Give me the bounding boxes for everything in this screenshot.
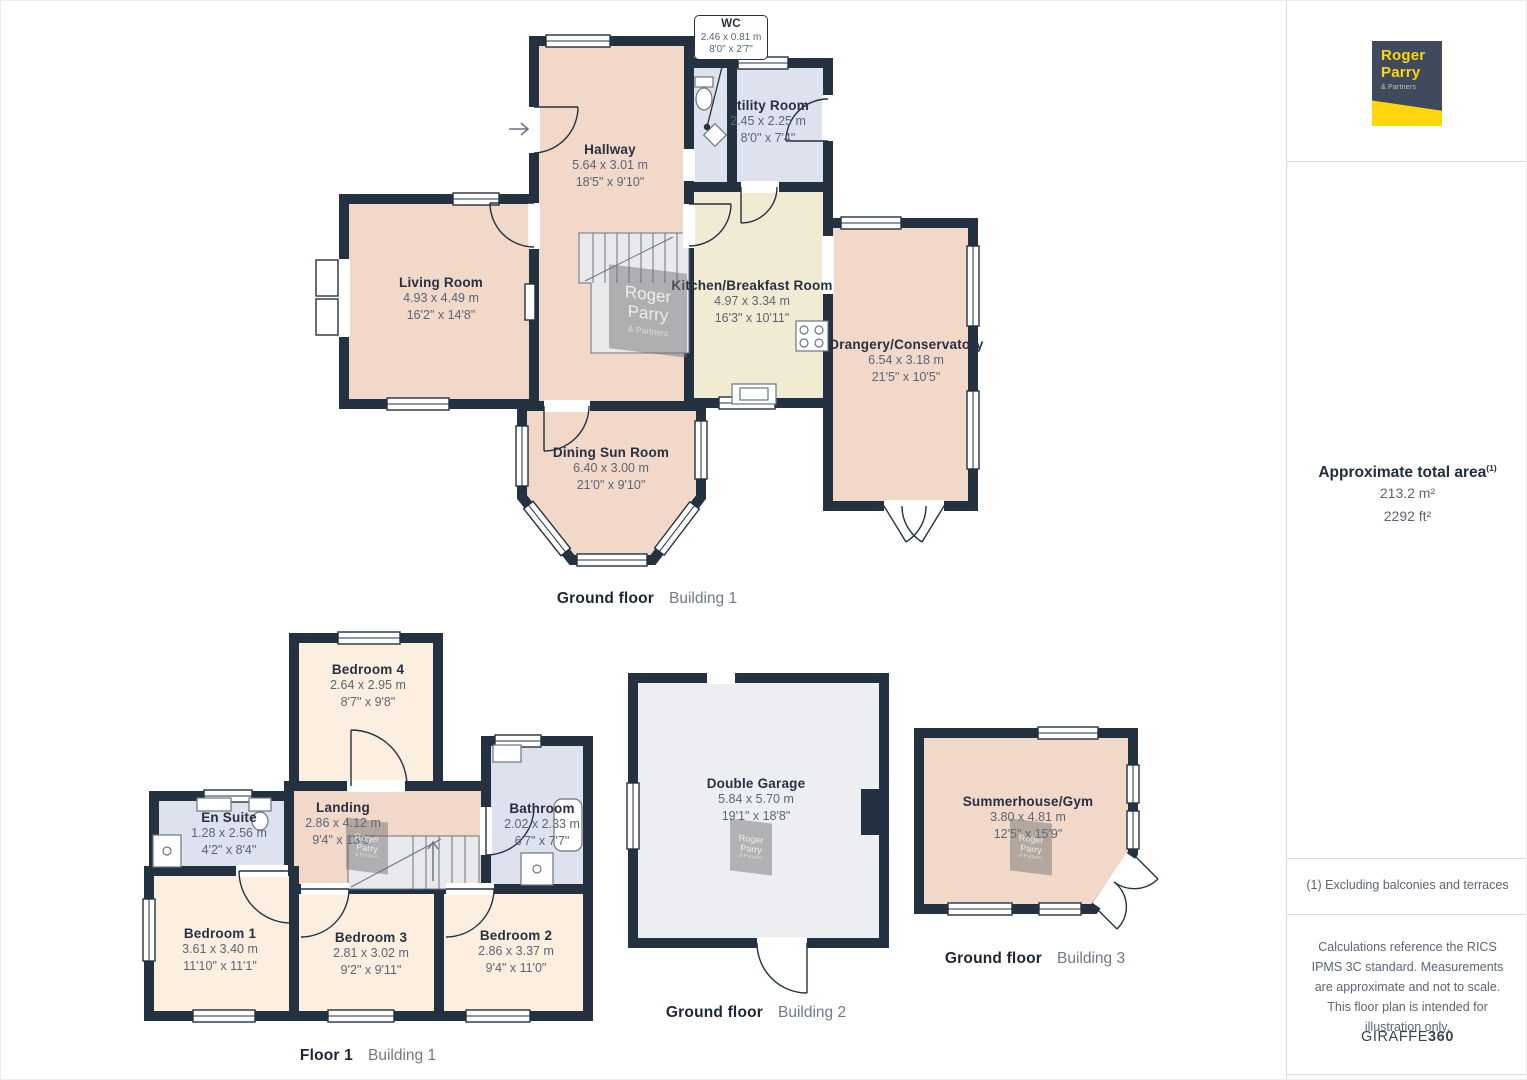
sink-icon bbox=[493, 745, 521, 762]
sink-icon bbox=[197, 798, 231, 811]
stairs-icon bbox=[579, 233, 689, 353]
total-area-title: Approximate total area bbox=[1318, 464, 1486, 481]
building1-floor1-plan bbox=[143, 632, 588, 1022]
shower-icon bbox=[521, 853, 553, 885]
building2-ground-plan bbox=[627, 672, 884, 993]
shower-icon bbox=[153, 835, 181, 867]
disclaimer-text: Calculations reference the RICS IPMS 3C … bbox=[1303, 937, 1512, 1037]
floorplan-drawing bbox=[1, 1, 1286, 1080]
caption-floor1-building1: Floor 1Building 1 bbox=[300, 1047, 436, 1065]
caption-ground-floor-building1: Ground floorBuilding 1 bbox=[557, 590, 737, 608]
footnote-text: (1) Excluding balconies and terraces bbox=[1287, 878, 1527, 892]
floorplan-page: WC 2.46 x 0.81 m 8'0" x 2'7" Hallway 5.6… bbox=[0, 0, 1527, 1080]
total-area-imperial: 2292 ft² bbox=[1287, 505, 1527, 528]
total-area-block: Approximate total area(1) 213.2 m² 2292 … bbox=[1287, 463, 1527, 528]
footnote-marker: (1) bbox=[1486, 463, 1496, 473]
wc-callout: WC 2.46 x 0.81 m 8'0" x 2'7" bbox=[694, 15, 768, 60]
entrance-arrow-icon bbox=[509, 123, 528, 135]
bath-icon bbox=[554, 799, 582, 851]
caption-ground-floor-building2: Ground floorBuilding 2 bbox=[666, 1004, 846, 1022]
stairs-icon bbox=[348, 836, 479, 889]
info-sidebar: Roger Parry & Partners Approximate total… bbox=[1286, 1, 1527, 1080]
toilet-icon bbox=[695, 77, 713, 110]
sidebar-divider bbox=[1287, 1074, 1527, 1075]
hob-icon bbox=[796, 321, 828, 351]
building3-ground-plan bbox=[919, 727, 1158, 929]
caption-ground-floor-building3: Ground floorBuilding 3 bbox=[945, 950, 1125, 968]
sidebar-divider bbox=[1287, 858, 1527, 859]
giraffe360-brand: GIRAFFE360 bbox=[1287, 1029, 1527, 1045]
floorplan-area: WC 2.46 x 0.81 m 8'0" x 2'7" Hallway 5.6… bbox=[1, 1, 1286, 1080]
building1-ground-plan bbox=[316, 35, 979, 566]
total-area-metric: 213.2 m² bbox=[1287, 482, 1527, 505]
sidebar-divider bbox=[1287, 161, 1527, 162]
sink-icon bbox=[732, 384, 776, 404]
roger-parry-logo: Roger Parry & Partners bbox=[1372, 41, 1442, 126]
sidebar-divider bbox=[1287, 914, 1527, 915]
